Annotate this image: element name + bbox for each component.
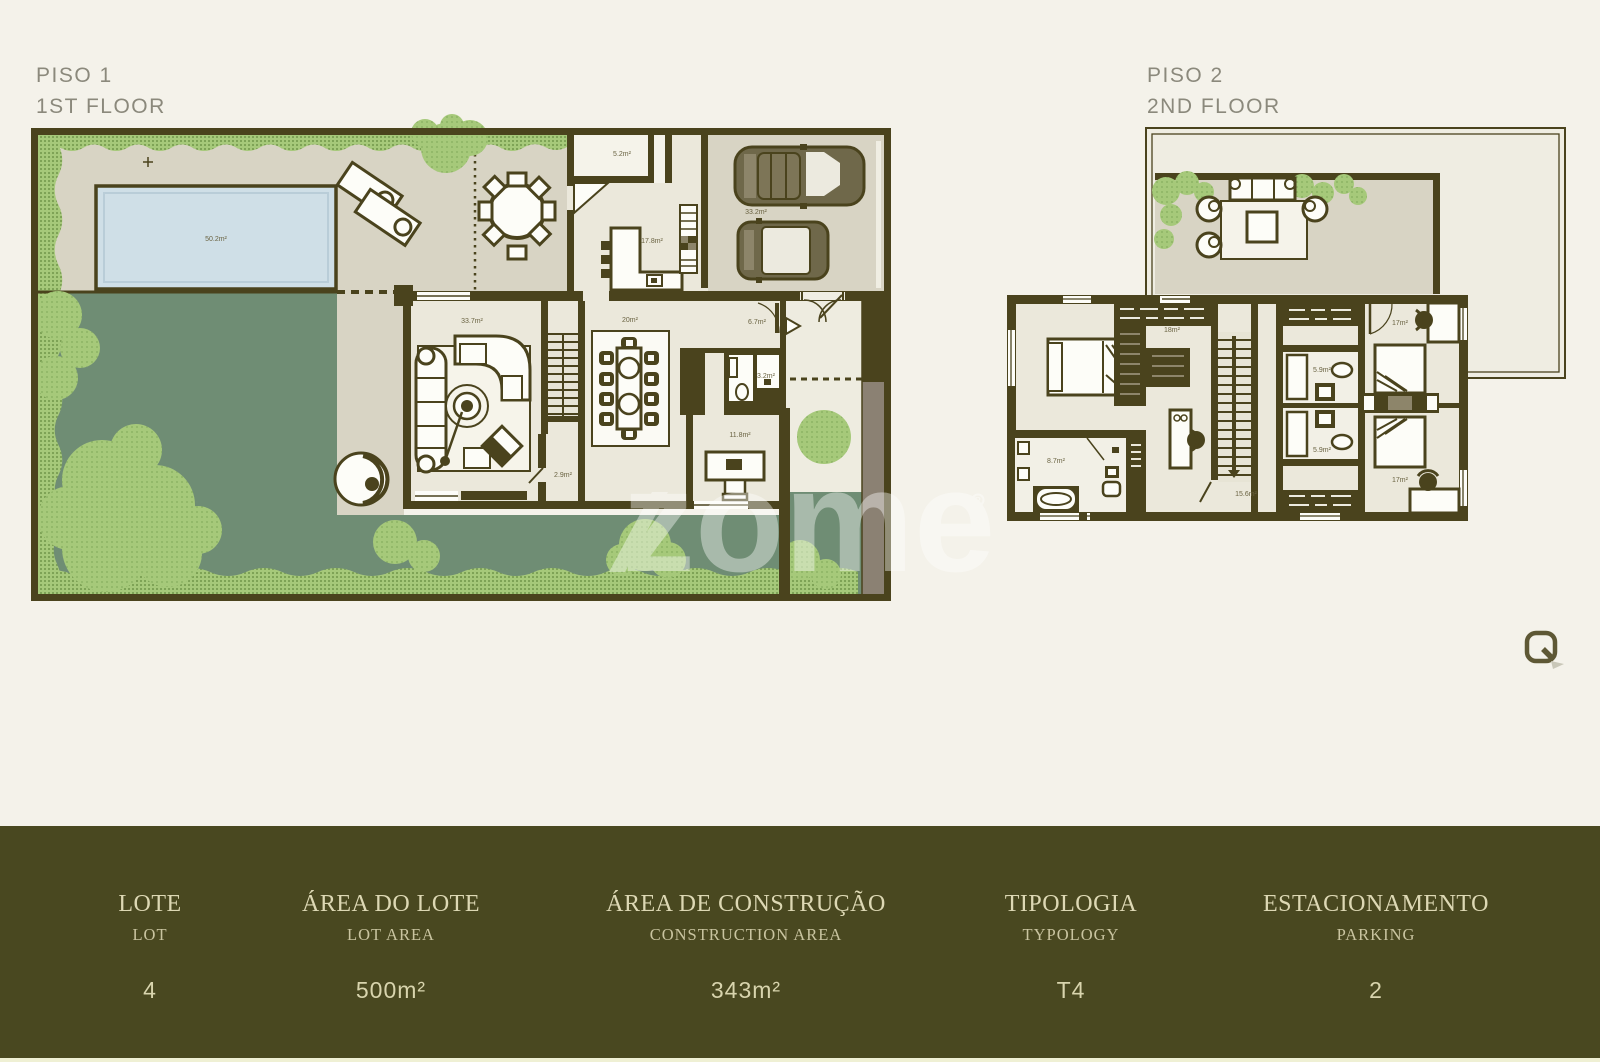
svg-text:500m²: 500m²: [356, 977, 426, 1003]
svg-text:15.6m²: 15.6m²: [1235, 491, 1257, 498]
svg-text:LOT AREA: LOT AREA: [347, 925, 435, 944]
svg-text:5.2m²: 5.2m²: [613, 151, 632, 158]
svg-text:5.9m²: 5.9m²: [1313, 447, 1332, 454]
svg-text:17m²: 17m²: [1392, 320, 1409, 327]
svg-text:17m²: 17m²: [1392, 477, 1409, 484]
svg-text:2ND FLOOR: 2ND FLOOR: [1147, 95, 1281, 118]
svg-text:17.8m²: 17.8m²: [641, 238, 663, 245]
svg-text:8.7m²: 8.7m²: [1047, 458, 1066, 465]
svg-text:2.9m²: 2.9m²: [554, 472, 573, 479]
svg-text:6.7m²: 6.7m²: [748, 319, 767, 326]
svg-text:zome: zome: [622, 439, 995, 602]
svg-text:ÁREA DE CONSTRUÇÃO: ÁREA DE CONSTRUÇÃO: [606, 891, 886, 917]
svg-text:1ST FLOOR: 1ST FLOOR: [36, 95, 166, 118]
svg-text:20m²: 20m²: [622, 317, 639, 324]
svg-text:T4: T4: [1057, 977, 1086, 1003]
svg-text:PISO 2: PISO 2: [1147, 64, 1224, 87]
svg-text:TIPOLOGIA: TIPOLOGIA: [1005, 891, 1138, 917]
svg-text:PISO 1: PISO 1: [36, 64, 113, 87]
svg-text:11.8m²: 11.8m²: [729, 432, 751, 439]
svg-text:3.2m²: 3.2m²: [757, 373, 776, 380]
svg-text:TYPOLOGY: TYPOLOGY: [1023, 925, 1120, 944]
svg-text:18m²: 18m²: [1164, 327, 1181, 334]
svg-text:ESTACIONAMENTO: ESTACIONAMENTO: [1263, 891, 1489, 917]
svg-text:LOTE: LOTE: [118, 891, 181, 917]
svg-text:50.2m²: 50.2m²: [205, 236, 227, 243]
svg-text:2: 2: [1369, 977, 1383, 1003]
svg-text:343m²: 343m²: [711, 977, 781, 1003]
svg-text:4: 4: [143, 977, 157, 1003]
svg-text:33.2m²: 33.2m²: [745, 209, 767, 216]
svg-text:CONSTRUCTION AREA: CONSTRUCTION AREA: [650, 925, 843, 944]
svg-text:LOT: LOT: [132, 925, 167, 944]
svg-text:R: R: [975, 496, 981, 505]
svg-text:PARKING: PARKING: [1337, 925, 1416, 944]
svg-text:ÁREA DO LOTE: ÁREA DO LOTE: [302, 891, 480, 917]
svg-text:5.9m²: 5.9m²: [1313, 367, 1332, 374]
svg-text:33.7m²: 33.7m²: [461, 318, 483, 325]
